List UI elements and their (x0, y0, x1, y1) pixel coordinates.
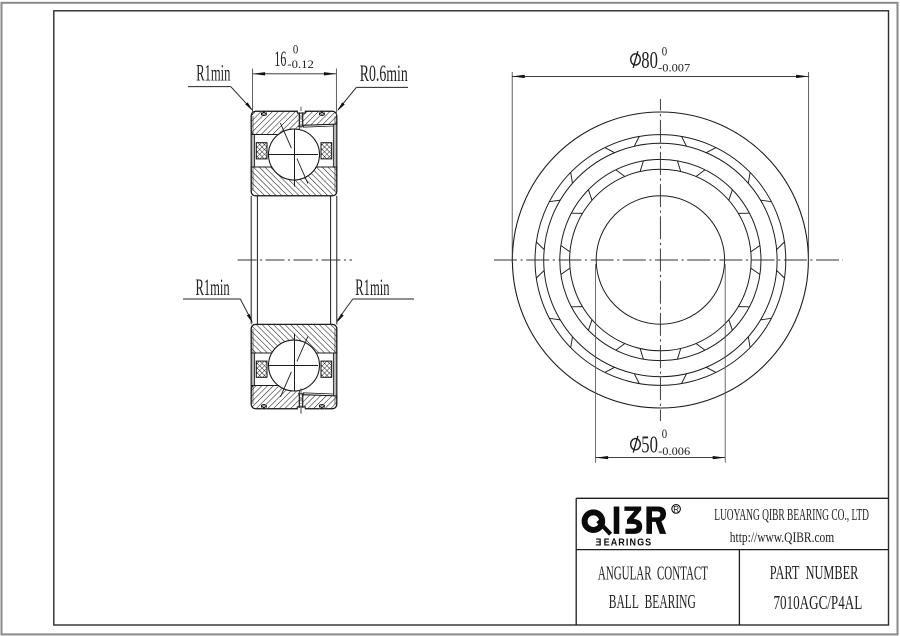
svg-text:PART NUMBER: PART NUMBER (770, 562, 859, 584)
svg-text:R1min: R1min (196, 61, 230, 87)
svg-text:LUOYANG QIBR BEARING CO., LTD: LUOYANG QIBR BEARING CO., LTD (714, 505, 869, 524)
svg-text:0: 0 (662, 44, 667, 58)
svg-text:7010AGC/P4AL: 7010AGC/P4AL (774, 592, 863, 614)
svg-text:80: 80 (641, 47, 658, 74)
svg-text:R1min: R1min (355, 275, 389, 301)
svg-text:EARINGS: EARINGS (604, 538, 653, 549)
svg-text:0: 0 (662, 427, 667, 441)
svg-text:R1min: R1min (196, 275, 230, 301)
svg-text:R: R (673, 505, 679, 514)
svg-text:0: 0 (293, 43, 298, 57)
svg-text:R0.6min: R0.6min (360, 61, 408, 87)
svg-text:-0.007: -0.007 (658, 60, 690, 74)
svg-text:50: 50 (641, 432, 658, 459)
svg-text:E: E (595, 538, 601, 549)
svg-text:BALL BEARING: BALL BEARING (609, 591, 696, 613)
svg-text:-0.12: -0.12 (287, 57, 314, 71)
svg-text:http://www.QIBR.com: http://www.QIBR.com (730, 530, 834, 546)
svg-text:ANGULAR CONTACT: ANGULAR CONTACT (598, 563, 708, 585)
svg-text:16: 16 (274, 46, 286, 71)
svg-text:-0.006: -0.006 (658, 444, 690, 458)
